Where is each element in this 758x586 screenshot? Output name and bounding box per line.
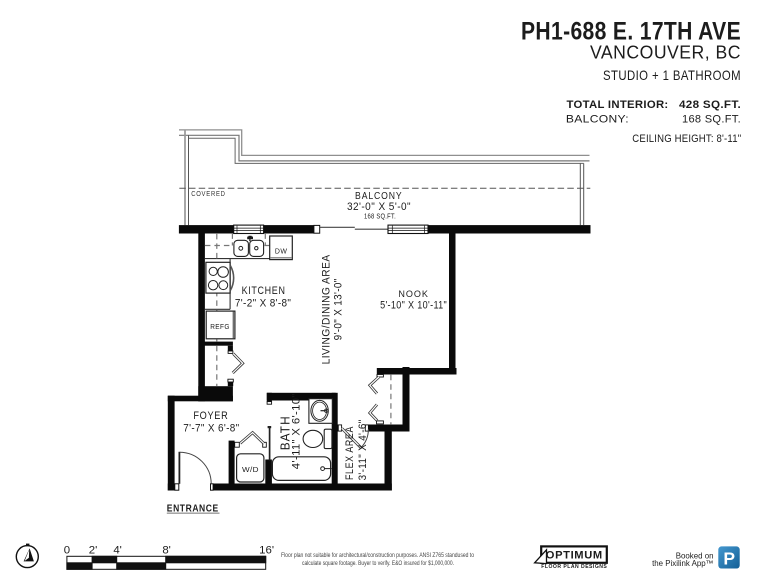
svg-text:168 SQ.FT.: 168 SQ.FT. <box>364 211 396 220</box>
svg-text:428 SQ.FT.: 428 SQ.FT. <box>679 99 741 111</box>
svg-text:P: P <box>723 548 735 568</box>
svg-text:REFG: REFG <box>210 324 230 331</box>
svg-text:CEILING HEIGHT: 8'-11": CEILING HEIGHT: 8'-11" <box>632 133 741 145</box>
svg-text:VANCOUVER, BC: VANCOUVER, BC <box>590 41 741 62</box>
svg-text:KITCHEN: KITCHEN <box>242 285 286 297</box>
svg-text:168 SQ.FT.: 168 SQ.FT. <box>682 113 741 125</box>
svg-text:the Pixilink App™: the Pixilink App™ <box>652 559 713 568</box>
svg-text:0: 0 <box>64 545 70 557</box>
svg-text:LIVING/DINING AREA: LIVING/DINING AREA <box>321 254 333 364</box>
svg-text:W/D: W/D <box>242 465 259 474</box>
svg-text:BALCONY:: BALCONY: <box>566 113 629 125</box>
svg-text:Floor plan not suitable for ar: Floor plan not suitable for architectura… <box>281 552 474 559</box>
svg-text:FOYER: FOYER <box>193 410 228 422</box>
svg-text:OPTIMUM: OPTIMUM <box>546 550 603 562</box>
svg-text:7'-7" X 6'-8": 7'-7" X 6'-8" <box>183 422 239 434</box>
svg-text:DW: DW <box>275 248 288 255</box>
svg-text:7'-2" X 8'-8": 7'-2" X 8'-8" <box>235 297 291 309</box>
svg-text:FLEX AREA: FLEX AREA <box>344 426 356 480</box>
svg-text:4': 4' <box>113 545 122 557</box>
svg-text:STUDIO + 1 BATHROOM: STUDIO + 1 BATHROOM <box>603 67 741 83</box>
svg-text:8': 8' <box>162 545 171 557</box>
svg-text:COVERED: COVERED <box>191 191 226 198</box>
svg-text:3'-11" X 4'-6": 3'-11" X 4'-6" <box>357 419 369 480</box>
svg-text:2': 2' <box>89 545 98 557</box>
svg-text:4'-11" X 6'-10": 4'-11" X 6'-10" <box>290 393 302 469</box>
svg-text:calculate square footage. Buye: calculate square footage. Buyer to verif… <box>302 560 454 567</box>
svg-text:16': 16' <box>259 545 274 557</box>
svg-text:5'-10" X 10'-11": 5'-10" X 10'-11" <box>380 299 447 311</box>
svg-text:FLOOR PLAN DESIGNS: FLOOR PLAN DESIGNS <box>541 564 607 570</box>
svg-text:9'-0" X 13'-0": 9'-0" X 13'-0" <box>332 278 344 340</box>
svg-text:TOTAL INTERIOR:: TOTAL INTERIOR: <box>567 99 669 111</box>
